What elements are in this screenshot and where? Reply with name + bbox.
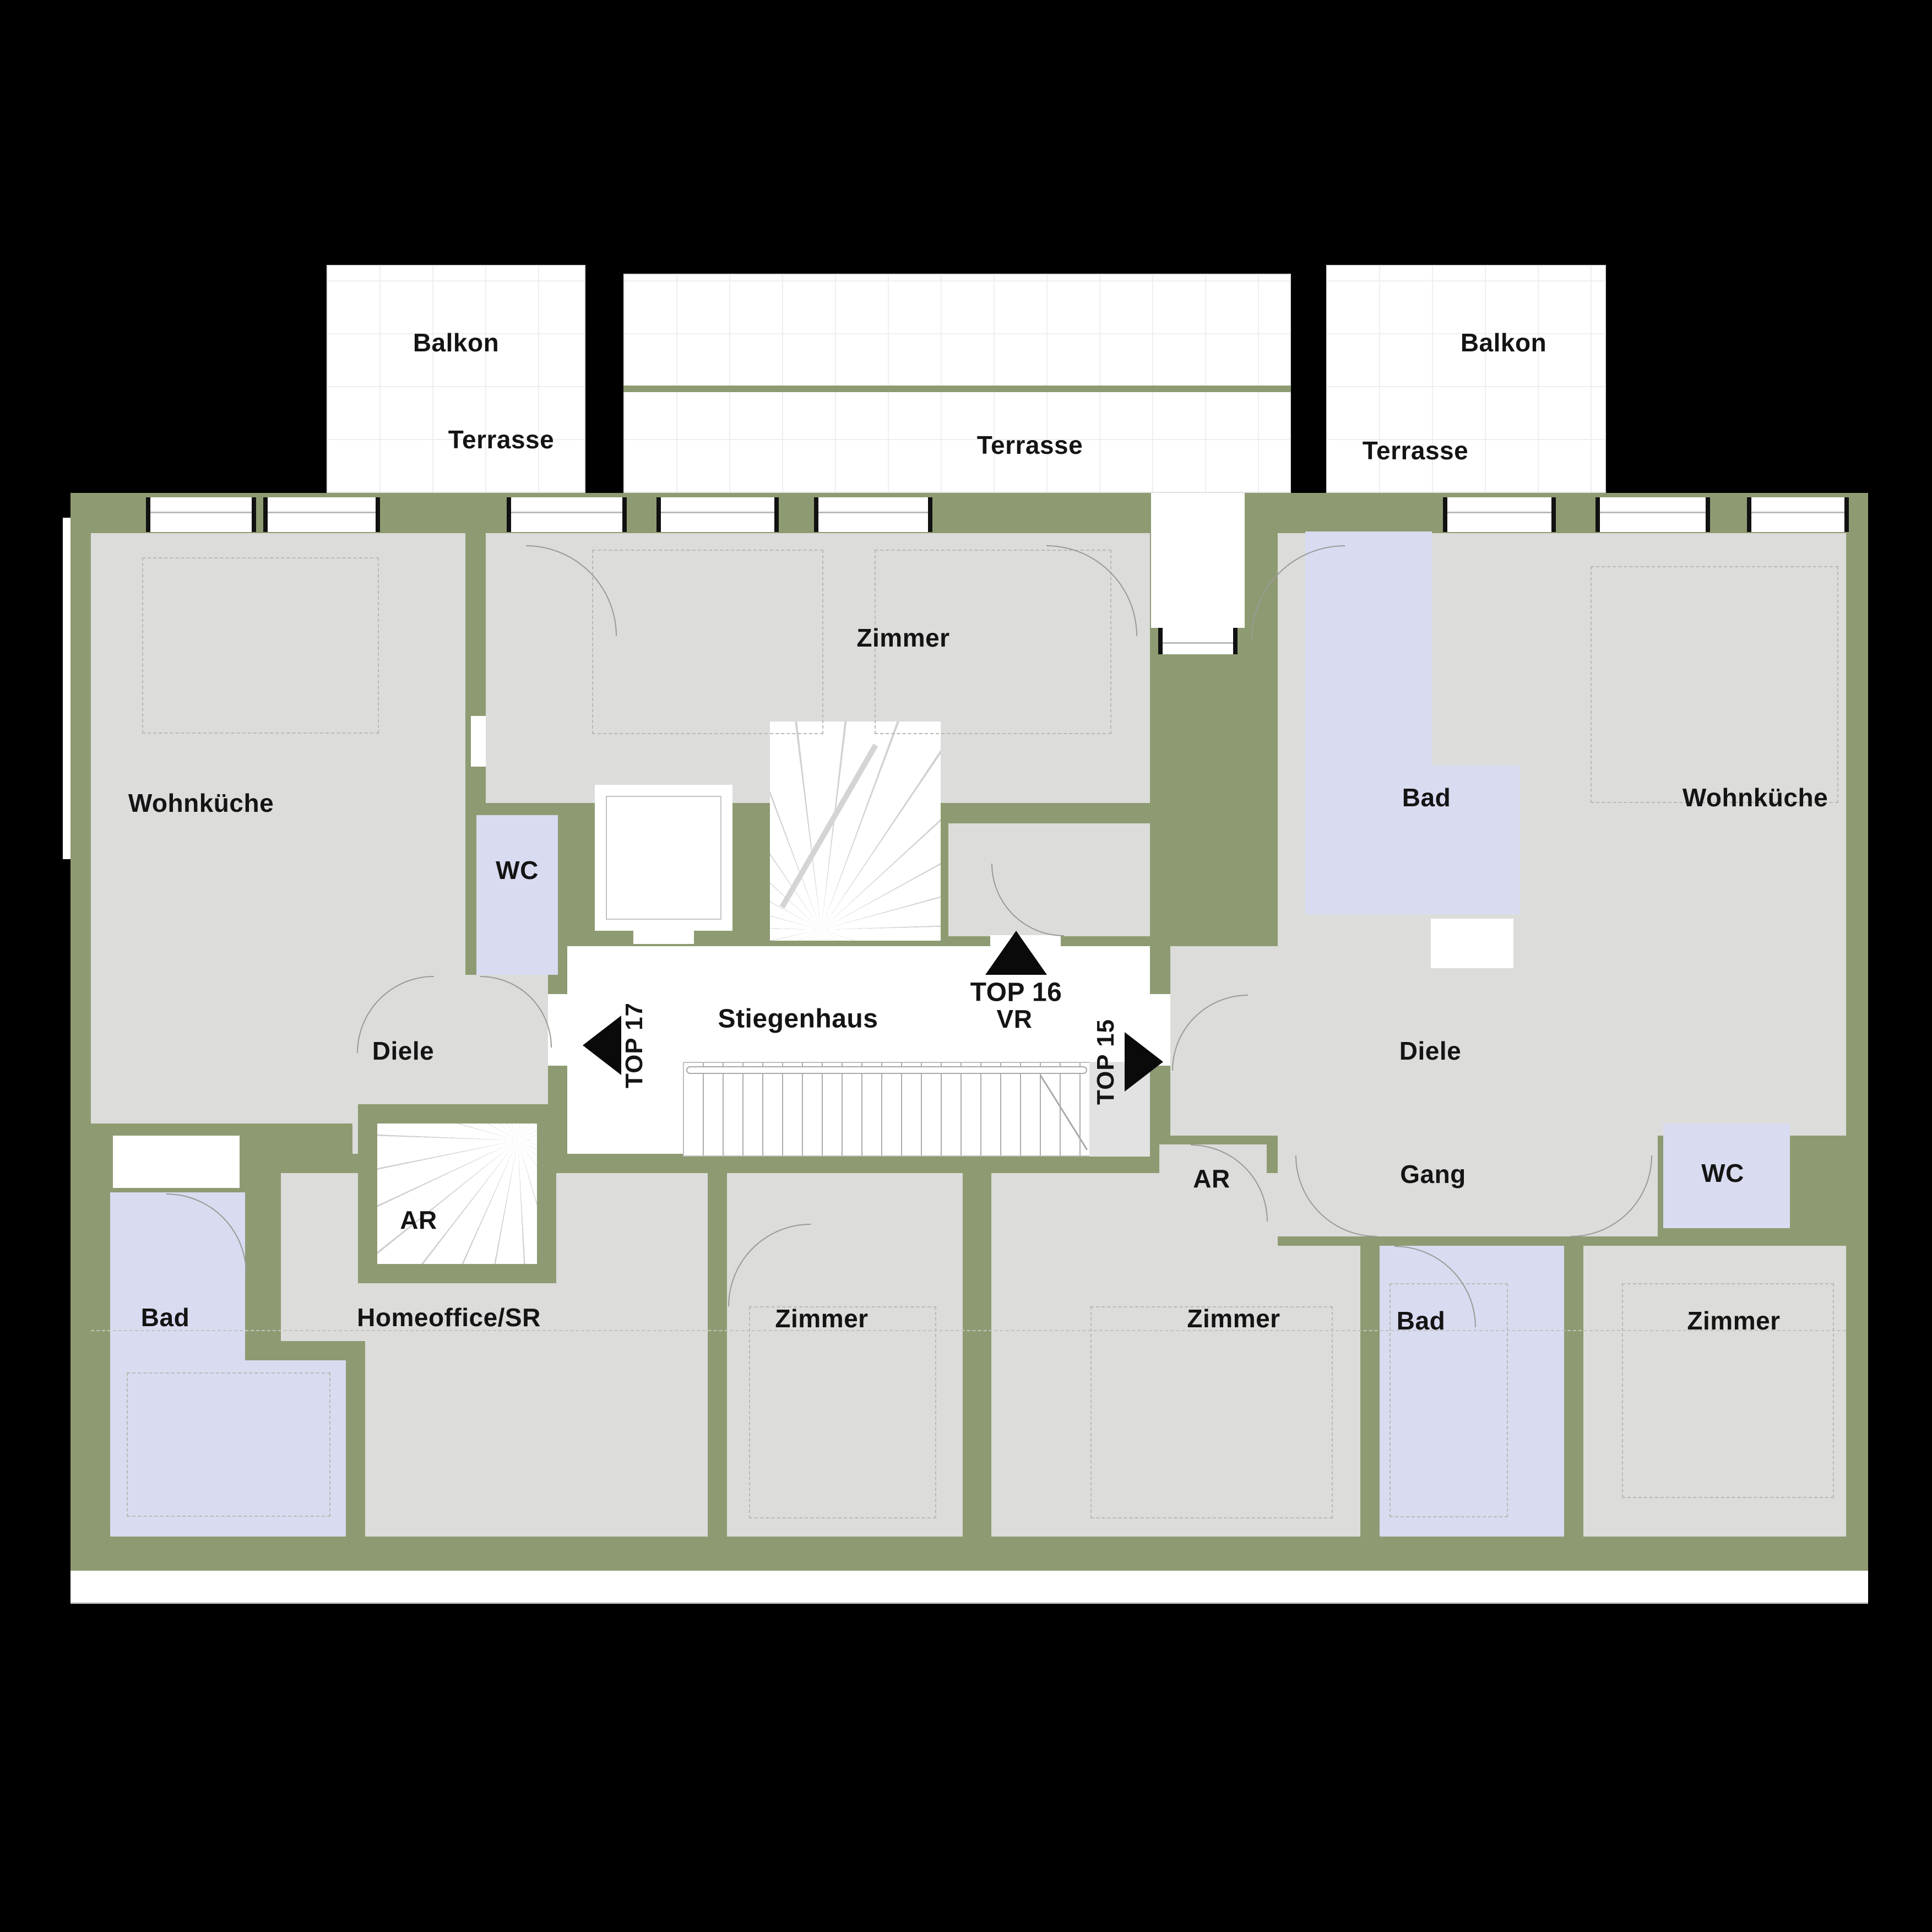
door-top17 (548, 994, 567, 1066)
ar-left-winder-stair (358, 1104, 556, 1283)
wardrobe-outline-zimmer-top-1 (592, 550, 823, 734)
label-zimmer-top: Zimmer (856, 623, 949, 653)
window (814, 497, 932, 532)
label-top17: TOP 17 (621, 1002, 648, 1088)
label-diele-right: Diele (1399, 1036, 1461, 1066)
label-wohnkueche-left: Wohnküche (128, 788, 274, 818)
label-balkon-right: Balkon (1461, 328, 1546, 357)
elevator (595, 785, 732, 931)
bed-outline-zimmer-bottom-left (749, 1306, 936, 1518)
label-ar-left: AR (400, 1205, 437, 1235)
bad-top-right-fixture (1431, 919, 1513, 968)
label-bad-bottom-right: Bad (1397, 1306, 1445, 1336)
facade-notch (1151, 493, 1245, 628)
label-terrasse-right: Terrasse (1363, 436, 1468, 465)
label-zimmer-bottom-right: Zimmer (1687, 1306, 1780, 1336)
roof-kink-line (91, 1330, 1846, 1331)
upper-winder-stair (770, 721, 941, 941)
label-top16: TOP 16 (970, 978, 1062, 1008)
label-zimmer-bottom-mid: Zimmer (1187, 1304, 1280, 1333)
kitchen-outline-left (142, 557, 379, 734)
label-wc-left: WC (496, 855, 539, 885)
left-facade-trim (63, 518, 70, 859)
label-top15: TOP 15 (1092, 1019, 1120, 1105)
terrace-middle-railing (623, 386, 1291, 392)
main-stair-handrail (686, 1066, 1087, 1074)
label-gang: Gang (1400, 1159, 1466, 1189)
kitchen-outline-right (1591, 566, 1838, 803)
label-wc-right: WC (1701, 1158, 1744, 1188)
label-bad-top-right: Bad (1402, 783, 1451, 812)
bottom-plinth (70, 1571, 1868, 1604)
label-top16-vr: VR (997, 1004, 1033, 1034)
label-bad-bottom-left: Bad (141, 1303, 189, 1332)
window (1443, 497, 1556, 532)
window (507, 497, 627, 532)
balcony-terrace-left (327, 265, 585, 493)
elevator-door (633, 930, 694, 944)
terrace-middle (623, 274, 1291, 493)
floorplan-canvas: TOP 16 VR TOP 17 TOP 15 Balkon Terrasse … (0, 0, 1932, 1932)
label-homeoffice: Homeoffice/SR (357, 1303, 541, 1332)
label-ar-right: AR (1193, 1164, 1230, 1193)
elevator-cab (606, 796, 721, 920)
window (146, 497, 256, 532)
arrow-top15-icon (1125, 1032, 1163, 1092)
window (1595, 497, 1710, 532)
label-zimmer-bottom-left: Zimmer (775, 1304, 868, 1333)
label-wohnkueche-right: Wohnküche (1683, 783, 1828, 812)
window (656, 497, 779, 532)
window (1747, 497, 1849, 532)
label-stiegenhaus: Stiegenhaus (718, 1004, 878, 1034)
arrow-top16-icon (985, 931, 1047, 975)
window (263, 497, 380, 532)
label-terrasse-left: Terrasse (448, 425, 554, 454)
bad-bottom-left-niche (113, 1136, 240, 1188)
fixture-outline-bad-bottom-left (127, 1372, 330, 1517)
room-wc-left-floor (476, 815, 558, 975)
label-terrasse-middle: Terrasse (977, 430, 1083, 460)
window (1158, 628, 1238, 654)
label-diele-left: Diele (372, 1036, 434, 1066)
bed-outline-zimmer-bottom-mid (1090, 1306, 1333, 1518)
main-stair-flight (683, 1062, 1090, 1157)
label-balkon-left: Balkon (413, 328, 499, 357)
arrow-top17-icon (583, 1016, 621, 1075)
